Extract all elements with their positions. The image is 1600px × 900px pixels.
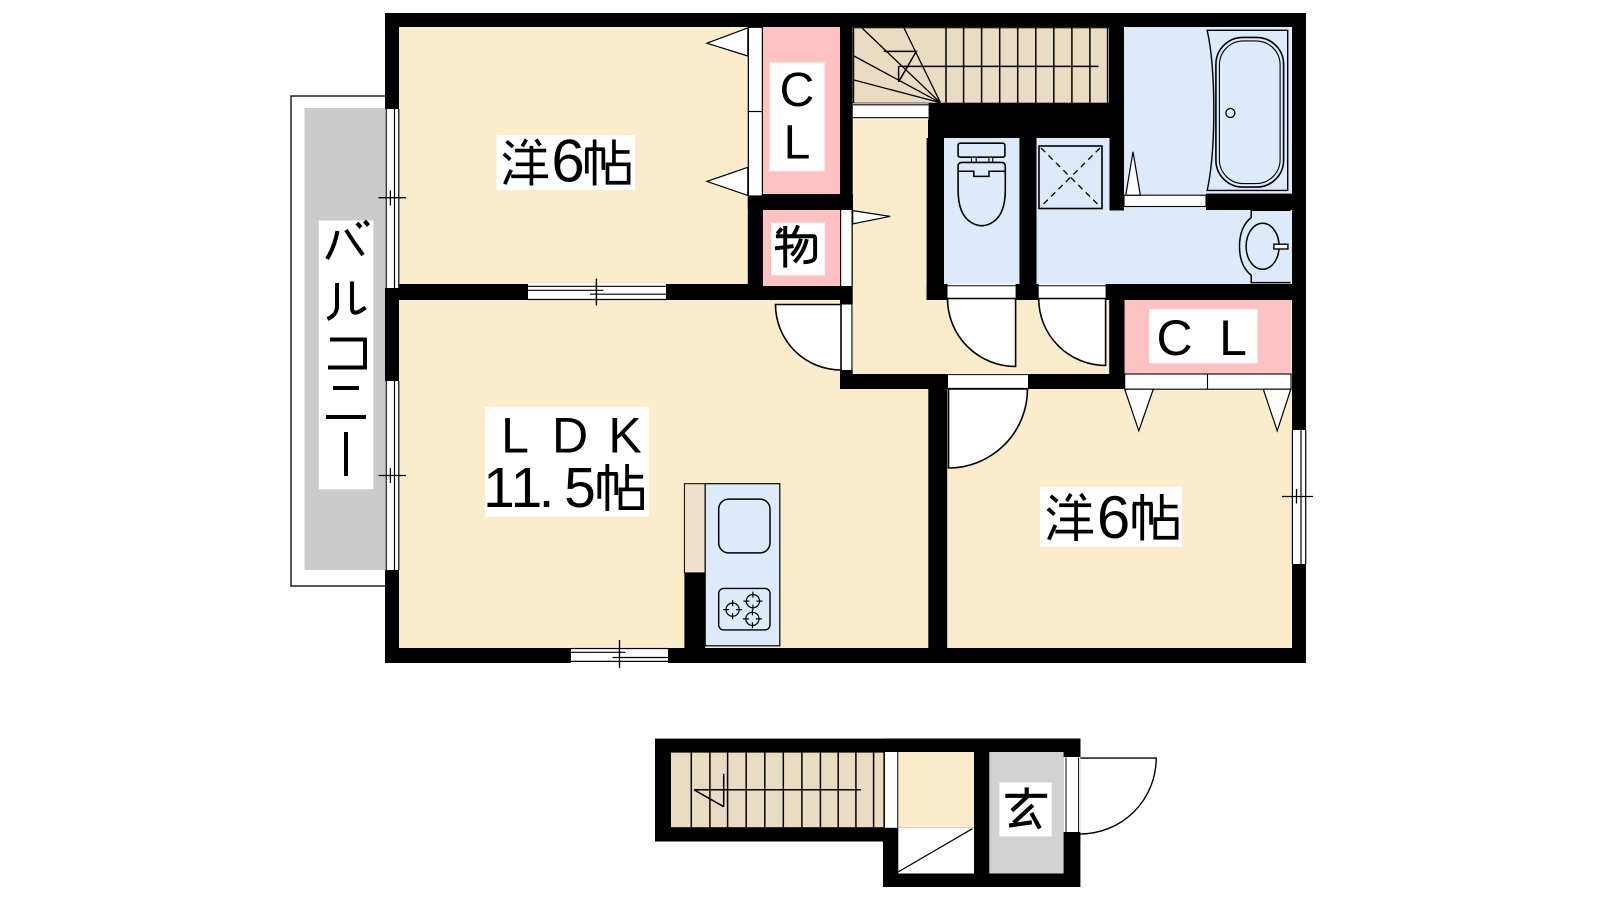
svg-text:L: L: [1219, 310, 1247, 366]
svg-text:L: L: [784, 117, 811, 170]
svg-text:K: K: [608, 408, 641, 464]
svg-text:6: 6: [1097, 484, 1130, 551]
svg-text:6: 6: [551, 128, 584, 195]
svg-text:C: C: [1156, 310, 1192, 366]
svg-text:C: C: [780, 64, 815, 117]
svg-text:.: .: [539, 456, 555, 520]
svg-text:5: 5: [564, 456, 596, 520]
